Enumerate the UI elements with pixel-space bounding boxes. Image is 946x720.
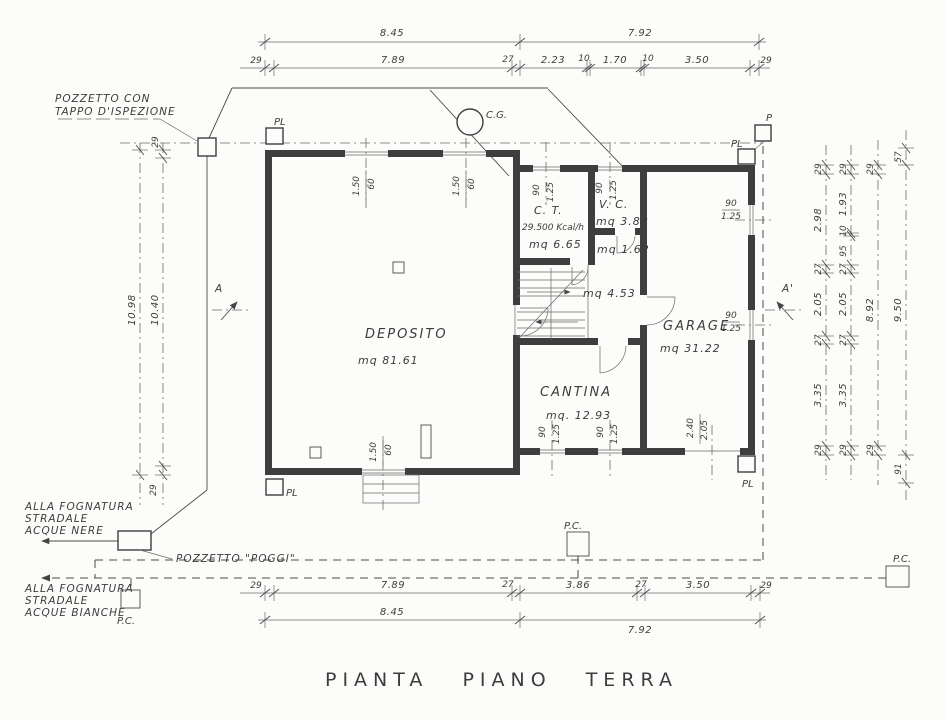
dim-t2-10a: 10: [578, 54, 590, 64]
doors: [520, 236, 675, 373]
svg-text:90: 90: [596, 426, 606, 438]
section-markers: A A': [214, 283, 794, 320]
dim-t2-223: 2.23: [541, 55, 565, 66]
cantina-window1-label: 901.25: [538, 424, 562, 444]
svg-text:27: 27: [814, 263, 824, 275]
svg-text:2.98: 2.98: [813, 208, 824, 232]
ct-area: mq 6.65: [529, 238, 582, 251]
acque-nere-line2: STRADALE: [25, 513, 88, 525]
svg-text:1.93: 1.93: [838, 192, 849, 216]
svg-text:90: 90: [595, 182, 605, 194]
svg-text:90: 90: [532, 184, 542, 196]
svg-text:29: 29: [866, 444, 876, 456]
pc-right-label: P.C.: [893, 554, 911, 565]
pc-right-square: [886, 566, 909, 587]
p-top-right-square: [755, 125, 771, 141]
acque-bianche-line2: STRADALE: [25, 595, 88, 607]
pozzetto-square: [198, 138, 216, 156]
gutter-downpipe-symbol: [457, 109, 483, 135]
svg-text:1.25: 1.25: [721, 324, 741, 334]
dim-b1-350: 3.50: [686, 580, 710, 591]
svg-text:60: 60: [467, 178, 477, 190]
acque-bianche-line3: ACQUE BIANCHE: [24, 607, 126, 619]
dim-b1-789: 7.89: [381, 580, 405, 591]
pl-bottom-right-square: [738, 456, 755, 472]
right-col3-labels: 29 8.92 29: [865, 163, 876, 456]
pozzetto-poggi-box: [118, 531, 151, 550]
bottom-dimension-row-1: 29 7.89 27 3.86 27 3.50 29: [240, 580, 772, 601]
ct-power: 29.500 Kcal/h: [522, 223, 584, 233]
cg-label: C.G.: [486, 110, 507, 121]
dim-b2-792: 7.92: [628, 625, 652, 636]
top-dimension-row-2: 29 7.89 27 2.23 10 1.70 10 3.50 29: [240, 54, 772, 76]
svg-text:29: 29: [814, 444, 824, 456]
svg-text:2.40: 2.40: [686, 418, 696, 438]
pl-bottom-left-label: PL: [286, 488, 298, 499]
dim-t2-27: 27: [502, 55, 514, 65]
svg-text:2.05: 2.05: [838, 292, 849, 316]
svg-text:90: 90: [725, 199, 737, 209]
ct-name: C. T.: [534, 204, 563, 217]
drawing-title: PIANTA PIANO TERRA: [325, 669, 678, 691]
svg-text:3.35: 3.35: [838, 383, 849, 407]
svg-text:27: 27: [814, 334, 824, 346]
pl-bottom-left-square: [266, 479, 283, 495]
svg-text:9.50: 9.50: [893, 298, 904, 322]
vc-area: mq 3.88: [596, 215, 649, 228]
pozzetto-poggi-label: POZZETTO "POGGI": [176, 553, 296, 565]
svg-text:2.05: 2.05: [813, 292, 824, 316]
pl-bottom-right-label: PL: [742, 479, 754, 490]
top-dimension-row-1: 8.45 7.92: [258, 28, 766, 50]
right-col4-labels: 57 9.50 91: [893, 151, 904, 475]
dim-b1-27a: 27: [502, 580, 514, 590]
boundary-lines: [95, 132, 763, 578]
dim-t2-29a: 29: [250, 56, 262, 66]
pc-left-label: P.C.: [117, 616, 135, 627]
pl-top-right-square: [738, 149, 755, 164]
svg-text:90: 90: [538, 426, 548, 438]
svg-text:90: 90: [725, 311, 737, 321]
dim-t2-789: 7.89: [381, 55, 405, 66]
dim-b2-845: 8.45: [380, 607, 404, 618]
svg-text:10: 10: [839, 225, 849, 237]
deposito-area: mq 81.61: [358, 354, 419, 367]
section-a-label: A: [214, 283, 223, 295]
room-labels: DEPOSITO mq 81.61 C. T. 29.500 Kcal/h mq…: [358, 198, 730, 422]
svg-text:91: 91: [894, 463, 904, 474]
floor-plan-drawing: C.G. POZZETTO CON TAPPO D'ISPEZIONE 10.9…: [0, 0, 946, 720]
dim-left-29-bottom: 29: [149, 484, 159, 496]
pc-middle-label: P.C.: [564, 521, 582, 532]
cantina-name: CANTINA: [540, 385, 612, 400]
dim-top-792: 7.92: [628, 28, 652, 39]
svg-text:1.25: 1.25: [609, 180, 619, 200]
dim-t2-170: 1.70: [603, 55, 627, 66]
dim-t2-29b: 29: [760, 56, 772, 66]
acque-nere-line3: ACQUE NERE: [24, 525, 104, 537]
garage-door-label: 2.402.05: [686, 414, 710, 444]
svg-text:57: 57: [894, 151, 904, 163]
pozzetto-ispezione-line2: TAPPO D'ISPEZIONE: [55, 106, 176, 118]
hall-area: mq 4.53: [583, 287, 636, 300]
svg-text:29: 29: [839, 163, 849, 175]
svg-text:8.92: 8.92: [865, 298, 876, 322]
window-b-label: 1.5060: [452, 170, 477, 200]
staircase: [517, 265, 588, 340]
dim-top-845: 8.45: [380, 28, 404, 39]
pozzetto-ispezione-line1: POZZETTO CON: [55, 93, 151, 105]
acque-nere-line1: ALLA FOGNATURA: [24, 501, 134, 513]
window-c-label: 1.5060: [369, 436, 394, 466]
dim-left-1040: 10.40: [150, 294, 161, 325]
svg-text:1.50: 1.50: [352, 176, 362, 196]
cantina-area: mq. 12.93: [546, 409, 611, 422]
garage-area: mq 31.22: [660, 342, 721, 355]
svg-text:2.05: 2.05: [700, 420, 710, 440]
right-col2-labels: 29 1.93 10 95 27 2.05 27 3.35 29: [838, 163, 849, 456]
svg-text:95: 95: [839, 245, 849, 257]
svg-text:1.25: 1.25: [546, 182, 556, 202]
svg-text:1.25: 1.25: [610, 424, 620, 444]
pl-top-left-square: [266, 128, 283, 144]
garage-window1-label: 901.25: [721, 199, 741, 222]
exterior-step: [363, 475, 419, 503]
dim-b1-29a: 29: [250, 581, 262, 591]
pc-middle-square: [567, 532, 589, 556]
section-a-prime-label: A': [781, 283, 794, 295]
svg-text:1.50: 1.50: [369, 442, 379, 462]
svg-text:29: 29: [814, 163, 824, 175]
window-a-label: 1.5060: [352, 170, 377, 200]
left-dimension-chains: 10.98 29 10.40 29: [127, 136, 171, 505]
svg-text:29: 29: [866, 163, 876, 175]
svg-text:27: 27: [839, 263, 849, 275]
svg-text:1.50: 1.50: [452, 176, 462, 196]
disimpegno-area: mq 1.62: [597, 243, 650, 256]
dim-b1-29b: 29: [760, 581, 772, 591]
dim-left-29-top: 29: [151, 136, 161, 148]
deposito-name: DEPOSITO: [365, 327, 448, 342]
svg-text:1.25: 1.25: [721, 212, 741, 222]
svg-text:27: 27: [839, 334, 849, 346]
dim-b1-27b: 27: [635, 580, 647, 590]
dim-left-outer: 10.98: [127, 294, 138, 325]
acque-bianche-line1: ALLA FOGNATURA: [24, 583, 134, 595]
dim-t2-350: 3.50: [685, 55, 709, 66]
p-top-right-label: P: [766, 113, 773, 124]
building-walls: [265, 150, 755, 475]
ct-window-label: 901.25: [532, 182, 556, 202]
svg-text:60: 60: [384, 444, 394, 456]
pl-top-left-label: PL: [274, 117, 286, 128]
right-dimension-chains: 29 2.98 27 2.05 27 3.35 29 29 1.93 10 95…: [813, 130, 914, 500]
vc-window-label: 901.25: [595, 180, 619, 200]
cantina-window2-label: 901.25: [596, 424, 620, 444]
svg-text:29: 29: [839, 444, 849, 456]
svg-text:3.35: 3.35: [813, 383, 824, 407]
dim-t2-10b: 10: [642, 54, 654, 64]
svg-text:60: 60: [367, 178, 377, 190]
svg-text:1.25: 1.25: [552, 424, 562, 444]
right-col1-labels: 29 2.98 27 2.05 27 3.35 29: [813, 163, 824, 456]
floor-plan-sheet: C.G. POZZETTO CON TAPPO D'ISPEZIONE 10.9…: [0, 0, 946, 720]
sewer-annotations: ALLA FOGNATURA STRADALE ACQUE NERE POZZE…: [24, 501, 911, 627]
bottom-dimension-row-2: 8.45 7.92: [258, 607, 766, 636]
dim-b1-386: 3.86: [566, 580, 590, 591]
